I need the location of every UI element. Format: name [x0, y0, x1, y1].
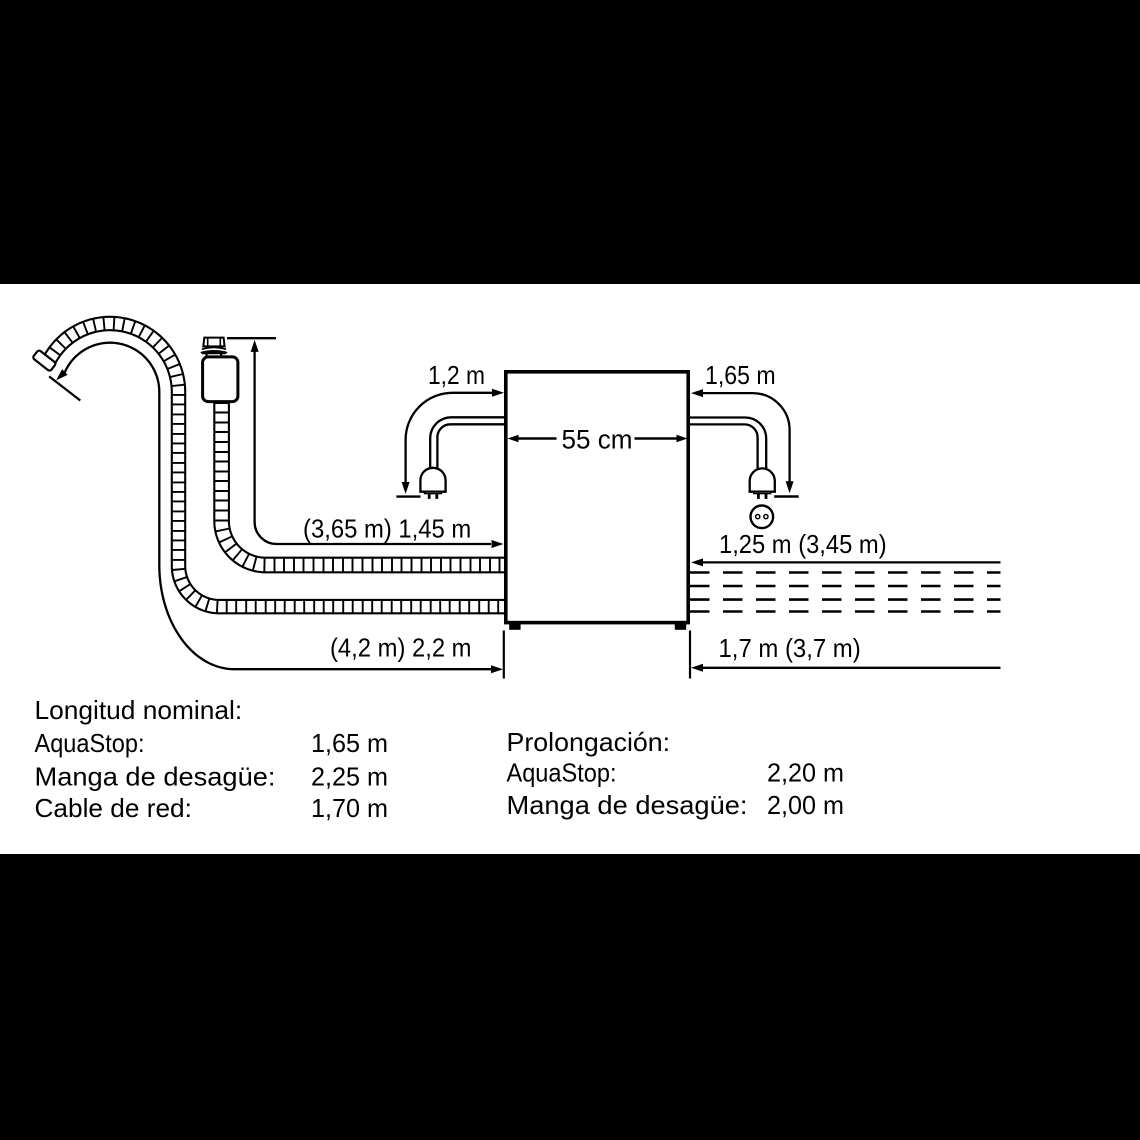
svg-text:1,7 m (3,7 m): 1,7 m (3,7 m) — [719, 633, 861, 663]
svg-text:1,65 m: 1,65 m — [311, 728, 388, 758]
svg-text:AquaStop:: AquaStop: — [507, 758, 617, 788]
svg-text:Manga de desagüe:: Manga de desagüe: — [35, 761, 276, 791]
svg-text:55 cm: 55 cm — [562, 424, 633, 454]
svg-text:Prolongación:: Prolongación: — [507, 727, 671, 757]
svg-text:AquaStop:: AquaStop: — [35, 728, 145, 758]
svg-text:(3,65 m) 1,45 m: (3,65 m) 1,45 m — [303, 513, 471, 543]
svg-text:1,25 m (3,45 m): 1,25 m (3,45 m) — [719, 529, 887, 559]
svg-text:2,00 m: 2,00 m — [767, 790, 844, 820]
svg-text:(4,2 m) 2,2 m: (4,2 m) 2,2 m — [330, 632, 472, 662]
svg-text:1,65 m: 1,65 m — [705, 360, 776, 390]
svg-text:Cable de red:: Cable de red: — [35, 793, 192, 823]
svg-text:1,70 m: 1,70 m — [311, 793, 388, 823]
svg-text:2,25 m: 2,25 m — [311, 761, 388, 791]
svg-text:Longitud nominal:: Longitud nominal: — [35, 695, 243, 725]
svg-text:2,20 m: 2,20 m — [767, 758, 844, 788]
svg-text:1,2 m: 1,2 m — [428, 360, 485, 390]
svg-text:Manga de desagüe:: Manga de desagüe: — [507, 790, 748, 820]
